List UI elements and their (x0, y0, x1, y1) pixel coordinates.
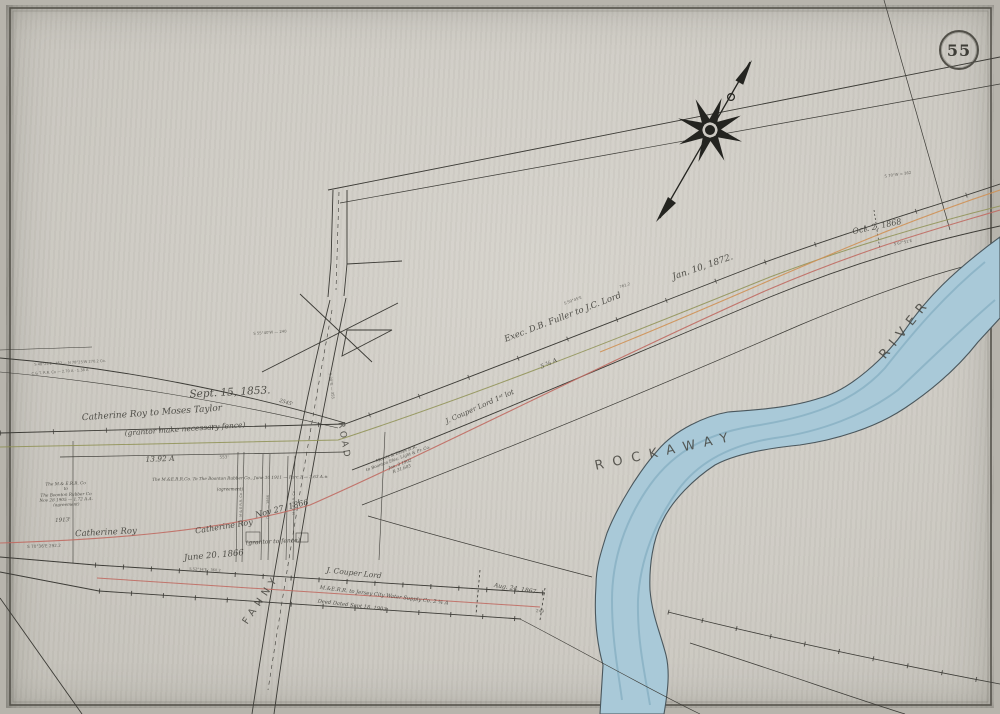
road-branch-line (347, 261, 402, 264)
property-line-topright-2 (340, 84, 1000, 203)
property-line-topright-1 (328, 57, 1000, 190)
road-centerline-dashed (336, 192, 339, 290)
east-bank-lines (520, 612, 1000, 714)
map-sheet: Sept. 15, 1853.Catherine Roy to Moses Ta… (0, 0, 1000, 714)
map-border (10, 8, 991, 705)
strip-connector-1 (0, 557, 95, 565)
red-centerline-strip (97, 578, 540, 607)
boundary-lines (0, 0, 1000, 714)
map-border-inner (13, 11, 988, 702)
sheet-number: 55 (947, 41, 971, 60)
rail-crossing (262, 294, 398, 372)
strip-dashed-end-1 (476, 570, 480, 615)
strip-north-boundary (95, 565, 545, 593)
strip-south-boundary (99, 591, 521, 619)
property-line-topright-3 (884, 0, 950, 230)
parcel-line-to-river (368, 516, 592, 577)
parcel-line-horizontal (60, 452, 345, 457)
row-curve-north-a (0, 358, 345, 423)
compass-hub (705, 125, 715, 135)
strip-connector-2 (0, 572, 99, 591)
left-edge-line (0, 347, 92, 350)
north-arrowhead (735, 60, 752, 85)
corner-cut-line (0, 598, 82, 714)
sheet-number-badge: 55 (939, 30, 979, 70)
dashed-offset-oct1868 (874, 210, 880, 250)
compass-rose (656, 60, 752, 222)
parcel-division-lines (73, 432, 385, 563)
survey-linework (0, 0, 1000, 714)
red-centerline-main (0, 210, 1000, 543)
needle-fletch (656, 197, 676, 222)
